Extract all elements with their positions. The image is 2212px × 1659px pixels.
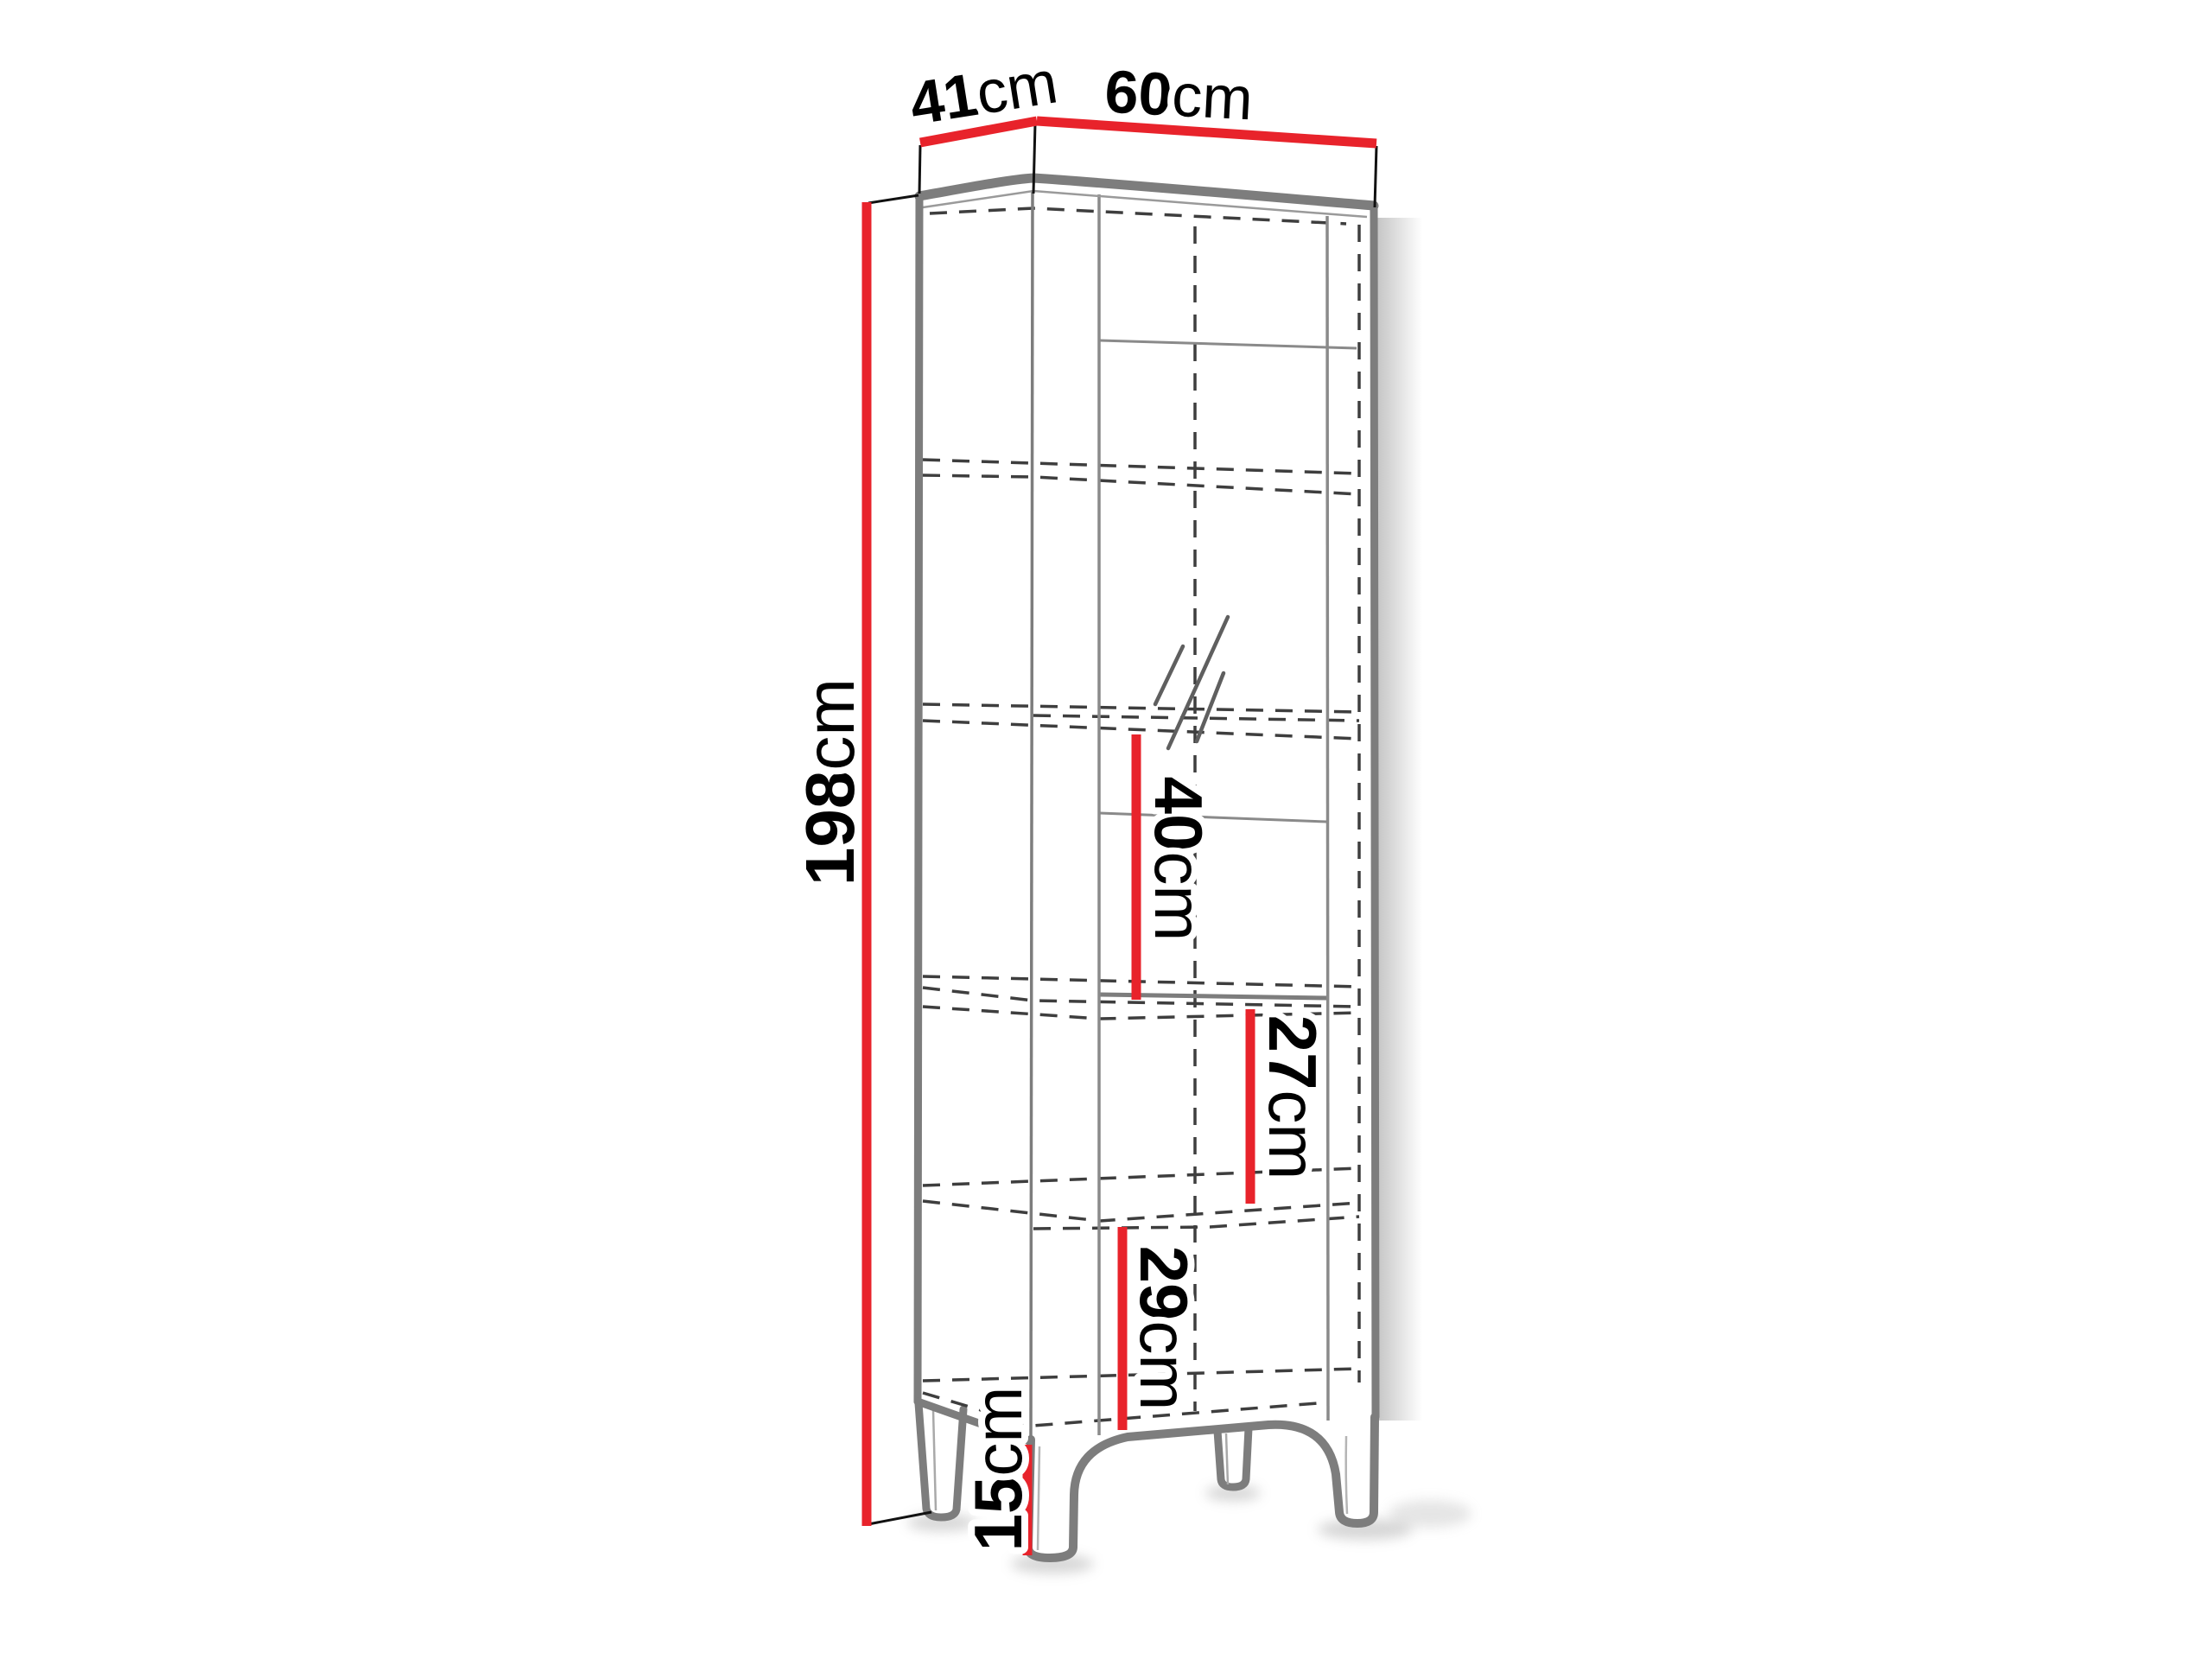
middle-section-dimension-label: 27cm [1255, 1015, 1331, 1180]
furniture-dimension-diagram: 41cm 60cm 198cm 40cm 27cm 29cm 15cm [0, 0, 2212, 1659]
cabinet-bottom-and-front-legs [1028, 1417, 1375, 1558]
left-edge [918, 196, 919, 1402]
back-left-leg [918, 1403, 963, 1517]
side-shadow [1377, 218, 1422, 1421]
bottom-section-dimension-label: 29cm [1126, 1246, 1202, 1411]
glass-reflection-marks [1155, 617, 1228, 748]
leg-height-dimension-label: 15cm [960, 1387, 1036, 1552]
height-dimension-label: 198cm [791, 678, 868, 886]
upper-section-dimension-label: 40cm [1141, 777, 1217, 942]
width-dimension-label: 60cm [1103, 58, 1255, 133]
glass-shelf-line [1100, 340, 1357, 348]
right-edge [1374, 206, 1376, 1417]
dimension-labels: 41cm 60cm 198cm 40cm 27cm 29cm 15cm [791, 48, 1331, 1551]
door-right-edge [1327, 216, 1328, 1421]
top-edge [919, 178, 1374, 206]
dimension-lines [867, 121, 1376, 1555]
leg-shadow [1389, 1500, 1471, 1528]
front-left-edge [1031, 191, 1033, 1440]
middle-leg [1217, 1428, 1249, 1487]
